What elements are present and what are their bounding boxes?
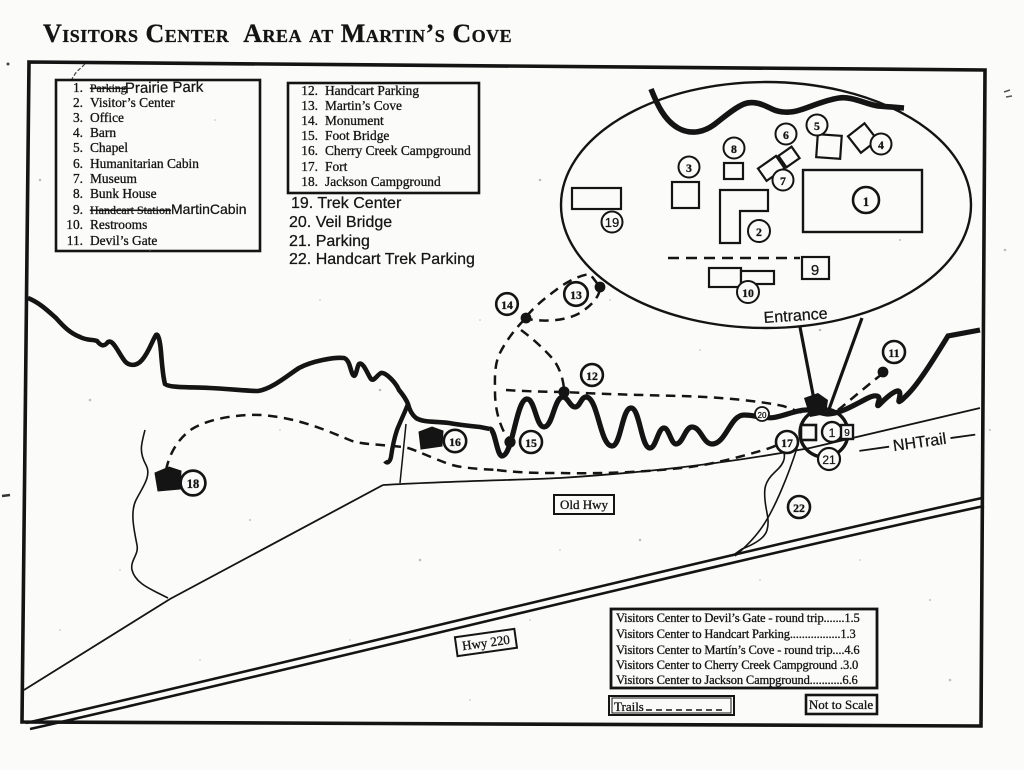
svg-text:Visitors Center Area at Marti: Visitors Center Area at Martin’s Cove <box>43 19 512 48</box>
svg-text:21. Parking: 21. Parking <box>289 233 370 250</box>
svg-text:14.: 14. <box>301 113 318 128</box>
svg-text:Monument: Monument <box>325 113 384 128</box>
svg-text:16: 16 <box>449 435 461 449</box>
svg-text:1: 1 <box>829 426 836 440</box>
svg-text:Old Hwy: Old Hwy <box>560 497 609 512</box>
svg-text:5.: 5. <box>73 140 83 155</box>
svg-text:7: 7 <box>780 174 786 188</box>
svg-text:19: 19 <box>605 215 619 230</box>
svg-text:9: 9 <box>811 262 819 279</box>
svg-text:5: 5 <box>814 119 820 133</box>
svg-text:Handcart Parking: Handcart Parking <box>325 83 419 98</box>
svg-text:Handcart Station: Handcart Station <box>90 203 171 217</box>
svg-text:Cherry Creek Campground: Cherry Creek Campground <box>325 143 471 158</box>
svg-text:MartinCabin: MartinCabin <box>171 201 246 217</box>
svg-text:17.: 17. <box>301 159 318 174</box>
svg-text:2: 2 <box>756 225 762 239</box>
svg-text:Restrooms: Restrooms <box>90 217 147 232</box>
svg-text:17: 17 <box>781 436 793 450</box>
svg-text:15: 15 <box>525 436 537 450</box>
svg-text:Visitors Center to Handcart Pa: Visitors Center to Handcart Parking.....… <box>616 627 856 641</box>
svg-text:20. Veil Bridge: 20. Veil Bridge <box>289 214 392 231</box>
svg-text:12.: 12. <box>301 83 318 98</box>
svg-text:Museum: Museum <box>90 171 137 186</box>
svg-text:12: 12 <box>586 369 598 383</box>
svg-text:Visitors Center to Martín’s Co: Visitors Center to Martín’s Cove - round… <box>616 643 860 657</box>
svg-text:18.: 18. <box>301 174 318 189</box>
svg-text:Foot Bridge: Foot Bridge <box>325 128 389 143</box>
svg-text:13: 13 <box>570 288 582 302</box>
svg-text:Chapel: Chapel <box>90 140 128 155</box>
svg-text:18: 18 <box>187 477 199 491</box>
svg-text:NHTrail: NHTrail <box>892 431 947 455</box>
svg-text:Visitors Center to Jackson Cam: Visitors Center to Jackson Campground...… <box>616 673 858 687</box>
svg-text:11: 11 <box>888 346 899 360</box>
svg-text:Visitor’s Center: Visitor’s Center <box>90 95 175 110</box>
svg-text:Barn: Barn <box>90 125 116 140</box>
svg-text:4.: 4. <box>73 125 83 140</box>
svg-text:Office: Office <box>90 110 124 125</box>
svg-text:2.: 2. <box>73 95 83 110</box>
svg-text:Bunk House: Bunk House <box>90 186 157 201</box>
svg-text:Devil’s Gate: Devil’s Gate <box>90 233 157 248</box>
svg-text:6.: 6. <box>73 156 83 171</box>
svg-text:14: 14 <box>501 298 513 312</box>
svg-text:Visitors Center to Devil’s Gat: Visitors Center to Devil’s Gate - round … <box>616 611 860 625</box>
svg-text:9: 9 <box>844 428 850 439</box>
svg-text:Trails: Trails <box>614 699 644 714</box>
svg-text:13.: 13. <box>301 98 318 113</box>
svg-text:7.: 7. <box>73 171 83 186</box>
svg-text:Fort: Fort <box>325 159 348 174</box>
svg-text:8: 8 <box>731 142 737 156</box>
svg-text:Parking: Parking <box>90 81 127 95</box>
svg-text:Martin’s Cove: Martin’s Cove <box>325 98 402 113</box>
svg-text:4: 4 <box>878 138 884 152</box>
svg-text:1.: 1. <box>73 80 83 95</box>
svg-text:15.: 15. <box>301 128 318 143</box>
svg-text:Prairie Park: Prairie Park <box>125 79 204 97</box>
svg-text:8.: 8. <box>73 186 83 201</box>
svg-text:3.: 3. <box>73 110 83 125</box>
svg-text:22: 22 <box>793 501 805 515</box>
svg-text:21: 21 <box>822 453 836 467</box>
svg-text:Visitors Center to Cherry Cree: Visitors Center to Cherry Creek Campgrou… <box>616 658 858 672</box>
svg-text:Humanitarian Cabin: Humanitarian Cabin <box>90 156 199 171</box>
svg-text:6: 6 <box>783 128 789 142</box>
svg-text:22. Handcart Trek Parking: 22. Handcart Trek Parking <box>289 251 475 268</box>
svg-text:10: 10 <box>742 286 754 300</box>
svg-text:9.: 9. <box>73 202 83 217</box>
svg-text:16.: 16. <box>301 143 318 158</box>
svg-text:3: 3 <box>686 161 692 175</box>
svg-text:Not to Scale: Not to Scale <box>809 697 873 712</box>
svg-text:20: 20 <box>758 411 767 420</box>
svg-text:Jackson Campground: Jackson Campground <box>325 174 441 189</box>
svg-text:19. Trek Center: 19. Trek Center <box>291 195 402 212</box>
svg-text:11.: 11. <box>67 233 83 248</box>
svg-text:1: 1 <box>863 195 869 209</box>
svg-text:10.: 10. <box>66 217 83 232</box>
